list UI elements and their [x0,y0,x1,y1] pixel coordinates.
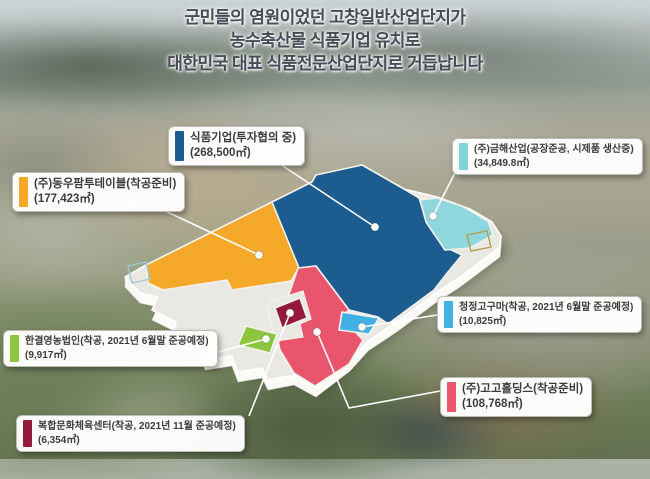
callout-dongwoo-title: (주)동우팜투테이블(착공준비) [34,177,176,192]
callout-dongwoo: (주)동우팜투테이블(착공준비) (177,423㎡) [12,172,185,212]
callout-hangyeol-title: 한결영농법인(착공, 2021년 6월말 준공예정) [25,335,209,349]
callout-geumhae: (주)금해산업(공장준공, 시제품 생산중) (34,849.8㎡) [452,138,643,175]
marker-bokhap [286,309,294,317]
callout-gogo-area: (108,768㎡) [462,397,583,412]
callout-gogo-title: (주)고고홀딩스(착공준비) [462,382,583,397]
marker-cheongjeong [358,323,366,331]
color-chip-gogo [447,382,456,412]
callout-gogo: (주)고고홀딩스(착공준비) (108,768㎡) [440,377,592,417]
title-line-2: 농수축산물 식품기업 유치로 [0,29,650,52]
callout-hangyeol-area: (9,917㎡) [25,349,209,363]
callout-dongwoo-area: (177,423㎡) [34,192,176,207]
callout-food-company: 식품기업(투자협의 중) (268,500㎡) [168,126,305,166]
callout-cheongjeong-area: (10,825㎡) [459,315,633,329]
callout-bokhap-area: (6,354㎡) [38,434,236,448]
marker-gogo [313,328,321,336]
callout-cheongjeong: 청정고구마(착공, 2021년 6월말 준공예정) (10,825㎡) [437,296,642,333]
callout-food-title: 식품기업(투자협의 중) [190,131,296,146]
marker-food [371,223,379,231]
callout-bokhap-title: 복합문화체육센터(착공, 2021년 11월 준공예정) [38,420,236,434]
callout-geumhae-title: (주)금해산업(공장준공, 시제품 생산중) [474,143,634,157]
marker-geumhae [429,212,437,220]
color-chip-dongwoo [19,177,28,207]
callout-geumhae-area: (34,849.8㎡) [474,157,634,171]
callout-bokhap: 복합문화체육센터(착공, 2021년 11월 준공예정) (6,354㎡) [16,415,245,452]
color-chip-cheongjeong [444,301,453,328]
zone-dongwoo-orange [146,202,299,290]
page-title: 군민들의 염원이었던 고창일반산업단지가 농수축산물 식품기업 유치로 대한민국… [0,6,650,75]
callout-food-area: (268,500㎡) [190,146,296,161]
color-chip-geumhae [459,143,468,170]
color-chip-bokhap [23,420,32,447]
callout-hangyeol: 한결영농법인(착공, 2021년 6월말 준공예정) (9,917㎡) [3,330,218,367]
marker-dongwoo [255,251,263,259]
title-line-3: 대한민국 대표 식품전문산업단지로 거듭납니다 [0,52,650,75]
color-chip-hangyeol [10,335,19,362]
marker-hangyeol [262,335,270,343]
title-line-1: 군민들의 염원이었던 고창일반산업단지가 [0,6,650,29]
color-chip-food [175,131,184,161]
callout-cheongjeong-title: 청정고구마(착공, 2021년 6월말 준공예정) [459,301,633,315]
